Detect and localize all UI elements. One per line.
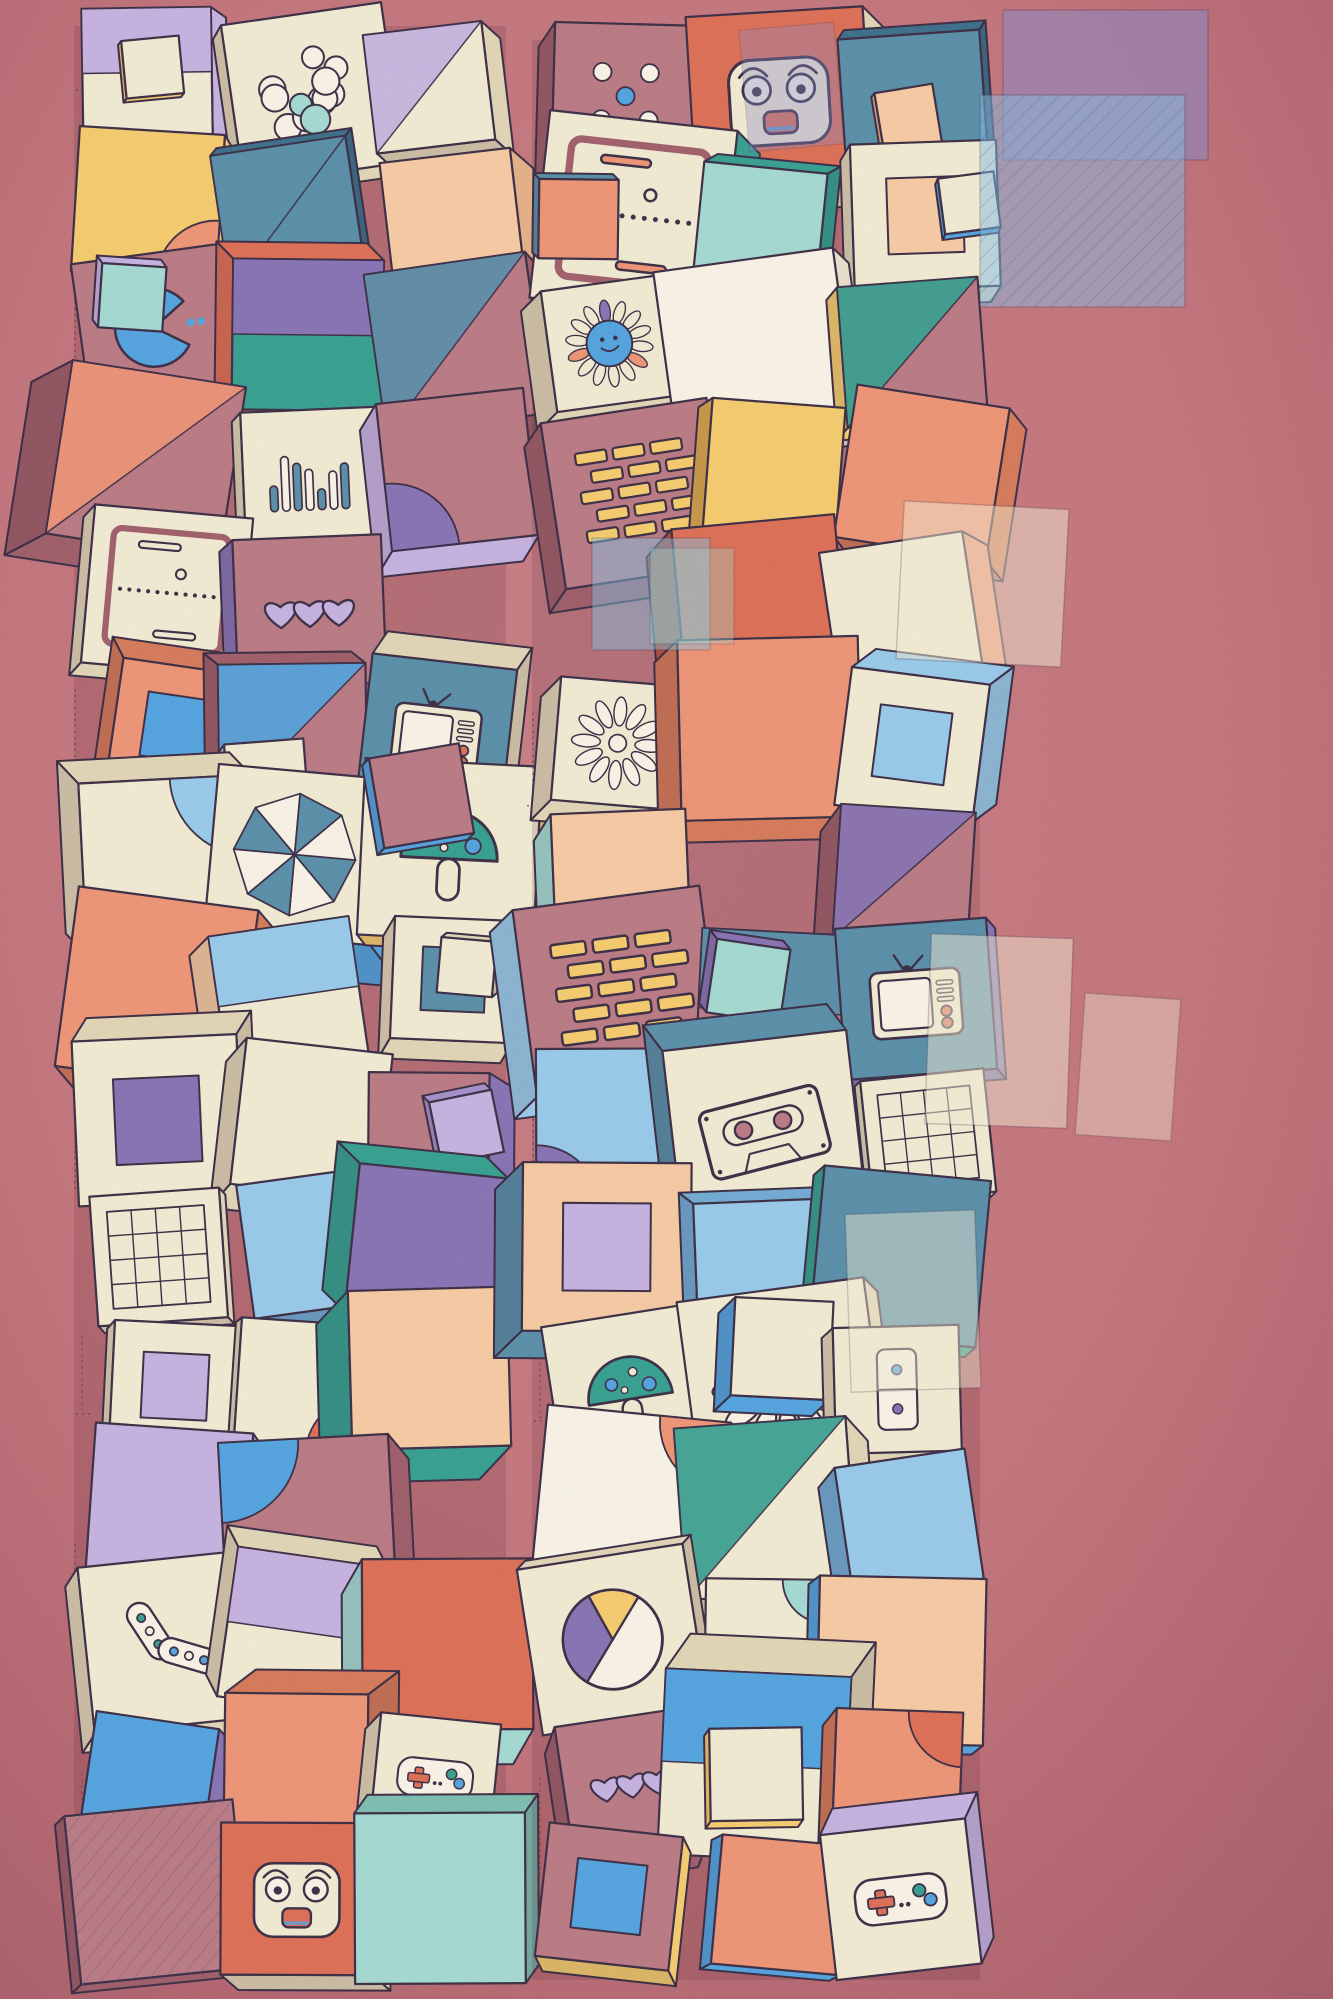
grain-texture bbox=[0, 0, 1333, 1999]
illustration-canvas bbox=[0, 0, 1333, 1999]
poster-illustration bbox=[0, 0, 1333, 1999]
